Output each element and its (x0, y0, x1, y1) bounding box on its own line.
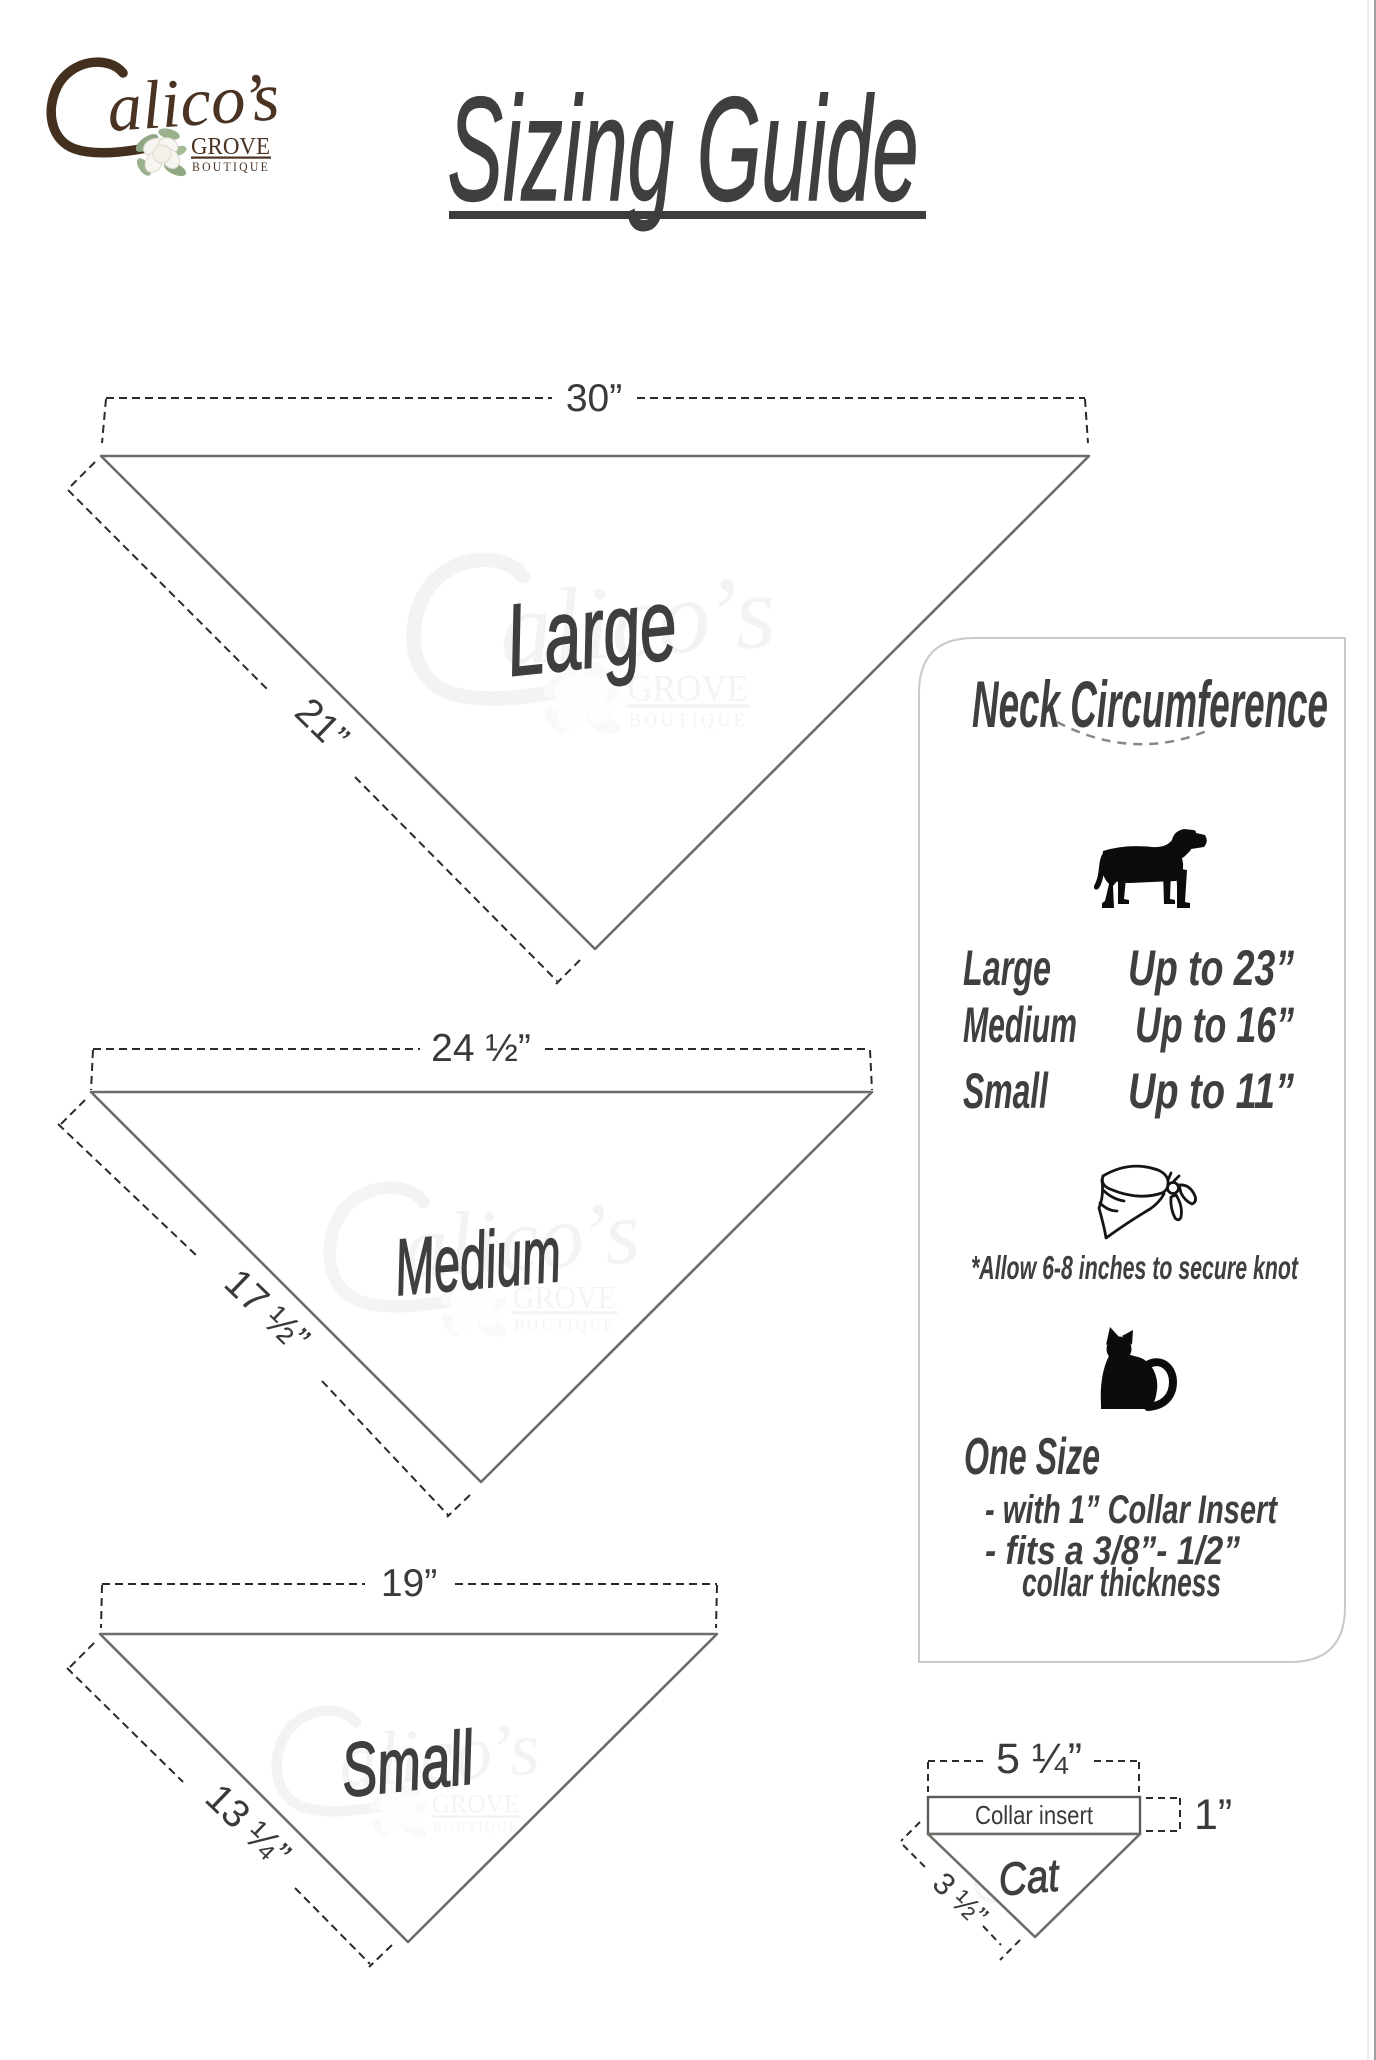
svg-text:Small: Small (337, 1715, 479, 1813)
svg-text:Large: Large (963, 940, 1051, 996)
svg-text:Up to 16”: Up to 16” (1135, 997, 1294, 1053)
svg-text:Up to 11”: Up to 11” (1128, 1063, 1294, 1119)
svg-text:- with 1” Collar Insert: - with 1” Collar Insert (985, 1488, 1278, 1532)
svg-text:Large: Large (501, 567, 682, 698)
svg-text:*Allow 6-8 inches to secure kn: *Allow 6-8 inches to secure knot (971, 1249, 1299, 1286)
svg-text:Small: Small (963, 1063, 1049, 1119)
svg-text:Medium: Medium (391, 1209, 564, 1312)
svg-text:Neck Circumference: Neck Circumference (972, 667, 1328, 741)
svg-text:Up to 23”: Up to 23” (1128, 940, 1294, 996)
svg-text:19”: 19” (381, 1562, 437, 1605)
svg-text:Cat: Cat (996, 1848, 1062, 1905)
svg-text:5 ¼”: 5 ¼” (996, 1735, 1082, 1783)
svg-text:collar thickness: collar thickness (1022, 1561, 1221, 1605)
svg-text:Collar insert: Collar insert (975, 1800, 1094, 1830)
svg-text:1”: 1” (1194, 1791, 1232, 1839)
svg-text:30”: 30” (566, 377, 622, 420)
svg-text:One Size: One Size (964, 1428, 1100, 1486)
svg-text:Medium: Medium (963, 997, 1077, 1053)
svg-text:24 ½”: 24 ½” (431, 1027, 531, 1070)
svg-text:Sizing Guide: Sizing Guide (448, 67, 919, 232)
